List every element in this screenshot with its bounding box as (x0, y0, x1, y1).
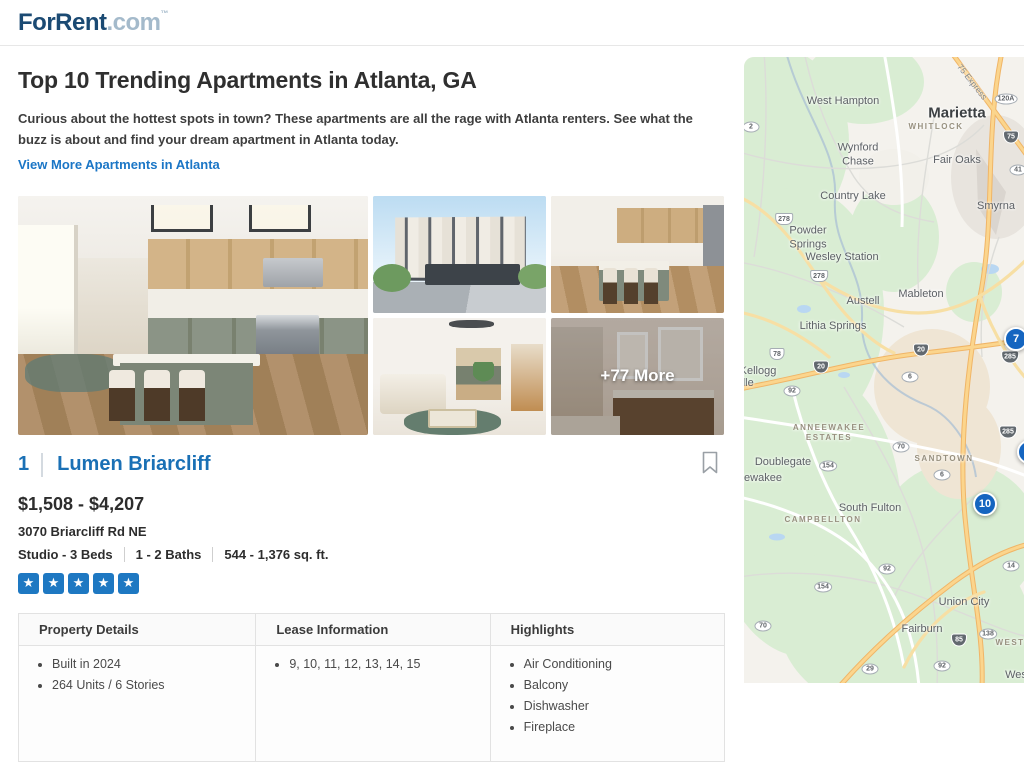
specs-row: Studio - 3 Beds 1 - 2 Baths 544 - 1,376 … (18, 547, 725, 562)
photo-art (644, 268, 658, 303)
details-table: Property Details Built in 2024264 Units … (18, 613, 725, 762)
route-shield-icon: 278 (775, 213, 793, 225)
rank-divider (41, 453, 43, 477)
bookmark-icon[interactable] (701, 451, 719, 479)
page-title: Top 10 Trending Apartments in Atlanta, G… (18, 67, 725, 94)
route-shield-icon: 70 (755, 621, 772, 632)
address: 3070 Briarcliff Rd NE (18, 524, 725, 539)
column-header: Property Details (19, 614, 255, 646)
top-nav: ForRent.com™ (0, 0, 1024, 46)
photo-art (109, 370, 135, 420)
logo-suffix: .com (107, 9, 161, 36)
list-item: Balcony (524, 678, 710, 692)
logo-trademark: ™ (161, 9, 169, 18)
photo-art (511, 344, 542, 412)
listing-rank: 1 (18, 453, 29, 476)
list-item: 264 Units / 6 Stories (52, 678, 241, 692)
forrent-logo[interactable]: ForRent.com™ (18, 9, 168, 37)
photo-art (263, 258, 323, 287)
main-content: Top 10 Trending Apartments in Atlanta, G… (18, 46, 725, 762)
photo-main-kitchen[interactable] (18, 196, 368, 435)
column-header: Lease Information (256, 614, 489, 646)
star-icon: ★ (18, 573, 39, 594)
photo-art (449, 320, 494, 328)
route-shield-icon: 92 (784, 386, 801, 397)
route-shield-icon: 6 (934, 470, 951, 481)
photo-art (151, 205, 213, 231)
photo-bathroom-more[interactable]: +77 More (551, 318, 724, 435)
list-item: 9, 10, 11, 12, 13, 14, 15 (289, 657, 475, 671)
photo-art (179, 370, 205, 420)
sqft: 544 - 1,376 sq. ft. (224, 547, 328, 562)
map-listing-marker[interactable]: 10 (973, 492, 997, 516)
photo-art (624, 268, 638, 303)
route-shield-icon: 154 (814, 582, 832, 593)
route-shield-icon: 6 (902, 372, 919, 383)
property-details-column: Property Details Built in 2024264 Units … (19, 614, 255, 761)
photo-building-exterior[interactable] (373, 196, 546, 313)
route-shield-icon: 70 (893, 442, 910, 453)
list-item: Dishwasher (524, 699, 710, 713)
photo-art (148, 239, 369, 289)
page-description: Curious about the hottest spots in town?… (18, 108, 718, 151)
photo-art (603, 268, 617, 303)
list-item: Fireplace (524, 720, 710, 734)
map-panel[interactable]: West HamptonMariettaWHITLOCKWynford Chas… (744, 57, 1024, 683)
route-shield-icon: 92 (879, 564, 896, 575)
more-photos-overlay[interactable]: +77 More (551, 318, 724, 435)
lease-information-column: Lease Information 9, 10, 11, 12, 13, 14,… (255, 614, 489, 761)
route-shield-icon: 41 (1010, 165, 1024, 176)
photo-art (380, 374, 446, 414)
photo-art (18, 225, 78, 364)
beds: Studio - 3 Beds (18, 547, 113, 562)
list-item: Built in 2024 (52, 657, 241, 671)
property-details-list: Built in 2024264 Units / 6 Stories (19, 657, 255, 719)
highlights-list: Air ConditioningBalconyDishwasherFirepla… (491, 657, 724, 761)
price-range: $1,508 - $4,207 (18, 494, 725, 515)
photo-art (518, 264, 546, 290)
photo-art (473, 362, 494, 388)
star-icon: ★ (93, 573, 114, 594)
listing-header: 1 Lumen Briarcliff (18, 451, 725, 479)
spec-divider (124, 547, 125, 562)
more-photos-label: +77 More (600, 366, 674, 386)
route-shield-icon: 154 (819, 461, 837, 472)
photo-living-room[interactable] (373, 318, 546, 435)
photo-art (373, 264, 411, 292)
star-rating: ★★★★★ (18, 573, 725, 594)
photo-art (249, 205, 311, 231)
column-header: Highlights (491, 614, 724, 646)
photo-art (148, 289, 369, 318)
view-more-link[interactable]: View More Apartments in Atlanta (18, 157, 220, 172)
map-listing-marker[interactable]: 7 (1004, 327, 1024, 351)
highlights-column: Highlights Air ConditioningBalconyDishwa… (490, 614, 724, 761)
star-icon: ★ (43, 573, 64, 594)
photo-art (144, 370, 170, 420)
photo-gallery: +77 More (18, 196, 725, 435)
route-shield-icon: 29 (862, 664, 879, 675)
photo-art (78, 258, 148, 354)
photo-art (428, 409, 476, 428)
photo-grid: +77 More (373, 196, 724, 435)
star-icon: ★ (118, 573, 139, 594)
map-canvas (744, 57, 1024, 683)
route-shield-icon: 278 (810, 270, 828, 282)
logo-primary: ForRent (18, 9, 107, 36)
photo-art (425, 264, 520, 285)
list-item: Air Conditioning (524, 657, 710, 671)
baths: 1 - 2 Baths (136, 547, 202, 562)
route-shield-icon: 92 (934, 661, 951, 672)
star-icon: ★ (68, 573, 89, 594)
route-shield-icon: 138 (979, 629, 997, 640)
lease-information-list: 9, 10, 11, 12, 13, 14, 15 (256, 657, 489, 698)
route-shield-icon: 14 (1003, 561, 1020, 572)
route-shield-icon: 120A (995, 94, 1018, 105)
spec-divider (212, 547, 213, 562)
listing-name-link[interactable]: Lumen Briarcliff (57, 453, 210, 476)
photo-kitchen-island[interactable] (551, 196, 724, 313)
